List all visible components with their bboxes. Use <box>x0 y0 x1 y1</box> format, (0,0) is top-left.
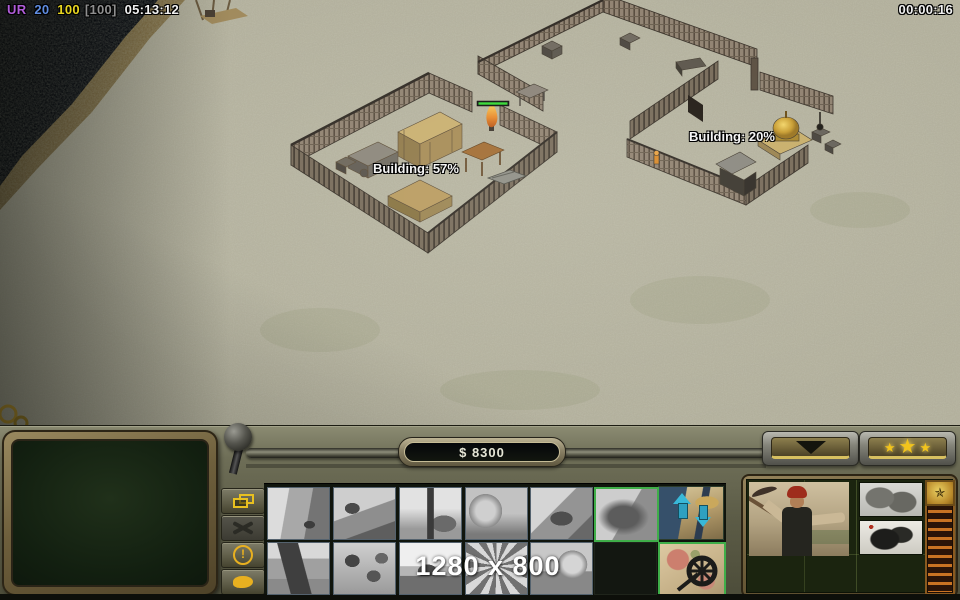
three-stars-icon: ★★★ <box>884 437 931 457</box>
select-structures-button[interactable] <box>221 488 265 514</box>
map-wheel-command[interactable] <box>658 542 726 598</box>
portrait-background <box>809 530 849 544</box>
veterancy-star-emblem: ✯ <box>925 480 955 506</box>
exclamation-circle-icon: ! <box>233 545 253 565</box>
worker-unit <box>654 155 659 164</box>
build-option-1[interactable] <box>267 487 330 540</box>
speech-bubble-icon <box>233 576 253 588</box>
up-arrow-stem <box>678 503 688 519</box>
power-max: [100] <box>85 2 117 17</box>
boots-icon[interactable] <box>859 520 923 555</box>
down-triangle-icon <box>796 441 826 454</box>
sandals-icon[interactable] <box>859 482 923 517</box>
worker-arm-right <box>807 512 846 526</box>
build-option-5[interactable] <box>530 487 593 540</box>
radar-knob <box>224 423 252 451</box>
build-option-4[interactable] <box>465 487 528 540</box>
radar-frame <box>2 430 218 596</box>
pickaxe-head <box>751 484 778 498</box>
power-current: 100 <box>57 2 80 17</box>
building-progress-label-right: Building: 20% <box>689 129 775 144</box>
money-display-frame: $ 8300 <box>398 437 566 467</box>
map-with-wheel-icon <box>660 544 724 596</box>
top-status-bar: UR 20 100 [100] 05:13:12 <box>7 2 183 17</box>
sell-button[interactable] <box>221 515 265 541</box>
radar-minimap[interactable] <box>11 439 209 587</box>
structure-up-down-arrows-command[interactable] <box>658 486 724 540</box>
match-timer: 00:00:16 <box>899 2 953 17</box>
health-bar <box>477 101 509 106</box>
chat-button[interactable] <box>221 569 265 595</box>
unit-count: 20 <box>34 2 49 17</box>
empty-build-slot <box>594 542 657 595</box>
game-screen: Building: 57% Building: 20% UR 20 100 [1… <box>0 0 960 600</box>
down-arrow-stem <box>699 505 708 520</box>
overlapping-frames-icon <box>233 494 253 508</box>
session-clock: 05:13:12 <box>125 2 179 17</box>
worker-cap <box>787 486 807 498</box>
selected-unit-panel: ✯ <box>741 474 958 598</box>
unit-panel-grid: ✯ <box>746 479 953 593</box>
build-option-2[interactable] <box>333 487 396 540</box>
money-display: $ 8300 <box>404 442 560 462</box>
building-progress-label-left: Building: 57% <box>373 161 459 176</box>
build-option-3[interactable] <box>399 487 462 540</box>
crossed-tools-icon <box>232 520 254 536</box>
general-promotion-button[interactable]: ★★★ <box>859 431 956 466</box>
worker-with-pickaxe-portrait[interactable] <box>749 482 849 556</box>
battlefield-overlay <box>0 0 960 430</box>
build-option-6[interactable] <box>594 487 659 542</box>
build-option-8[interactable] <box>333 542 396 595</box>
alert-button[interactable]: ! <box>221 542 265 568</box>
options-button[interactable] <box>762 431 859 466</box>
build-option-7[interactable] <box>267 542 330 595</box>
resolution-watermark: 1280 x 800 <box>398 551 578 582</box>
worker-vest <box>782 507 812 556</box>
faction-tag: UR <box>7 2 26 17</box>
